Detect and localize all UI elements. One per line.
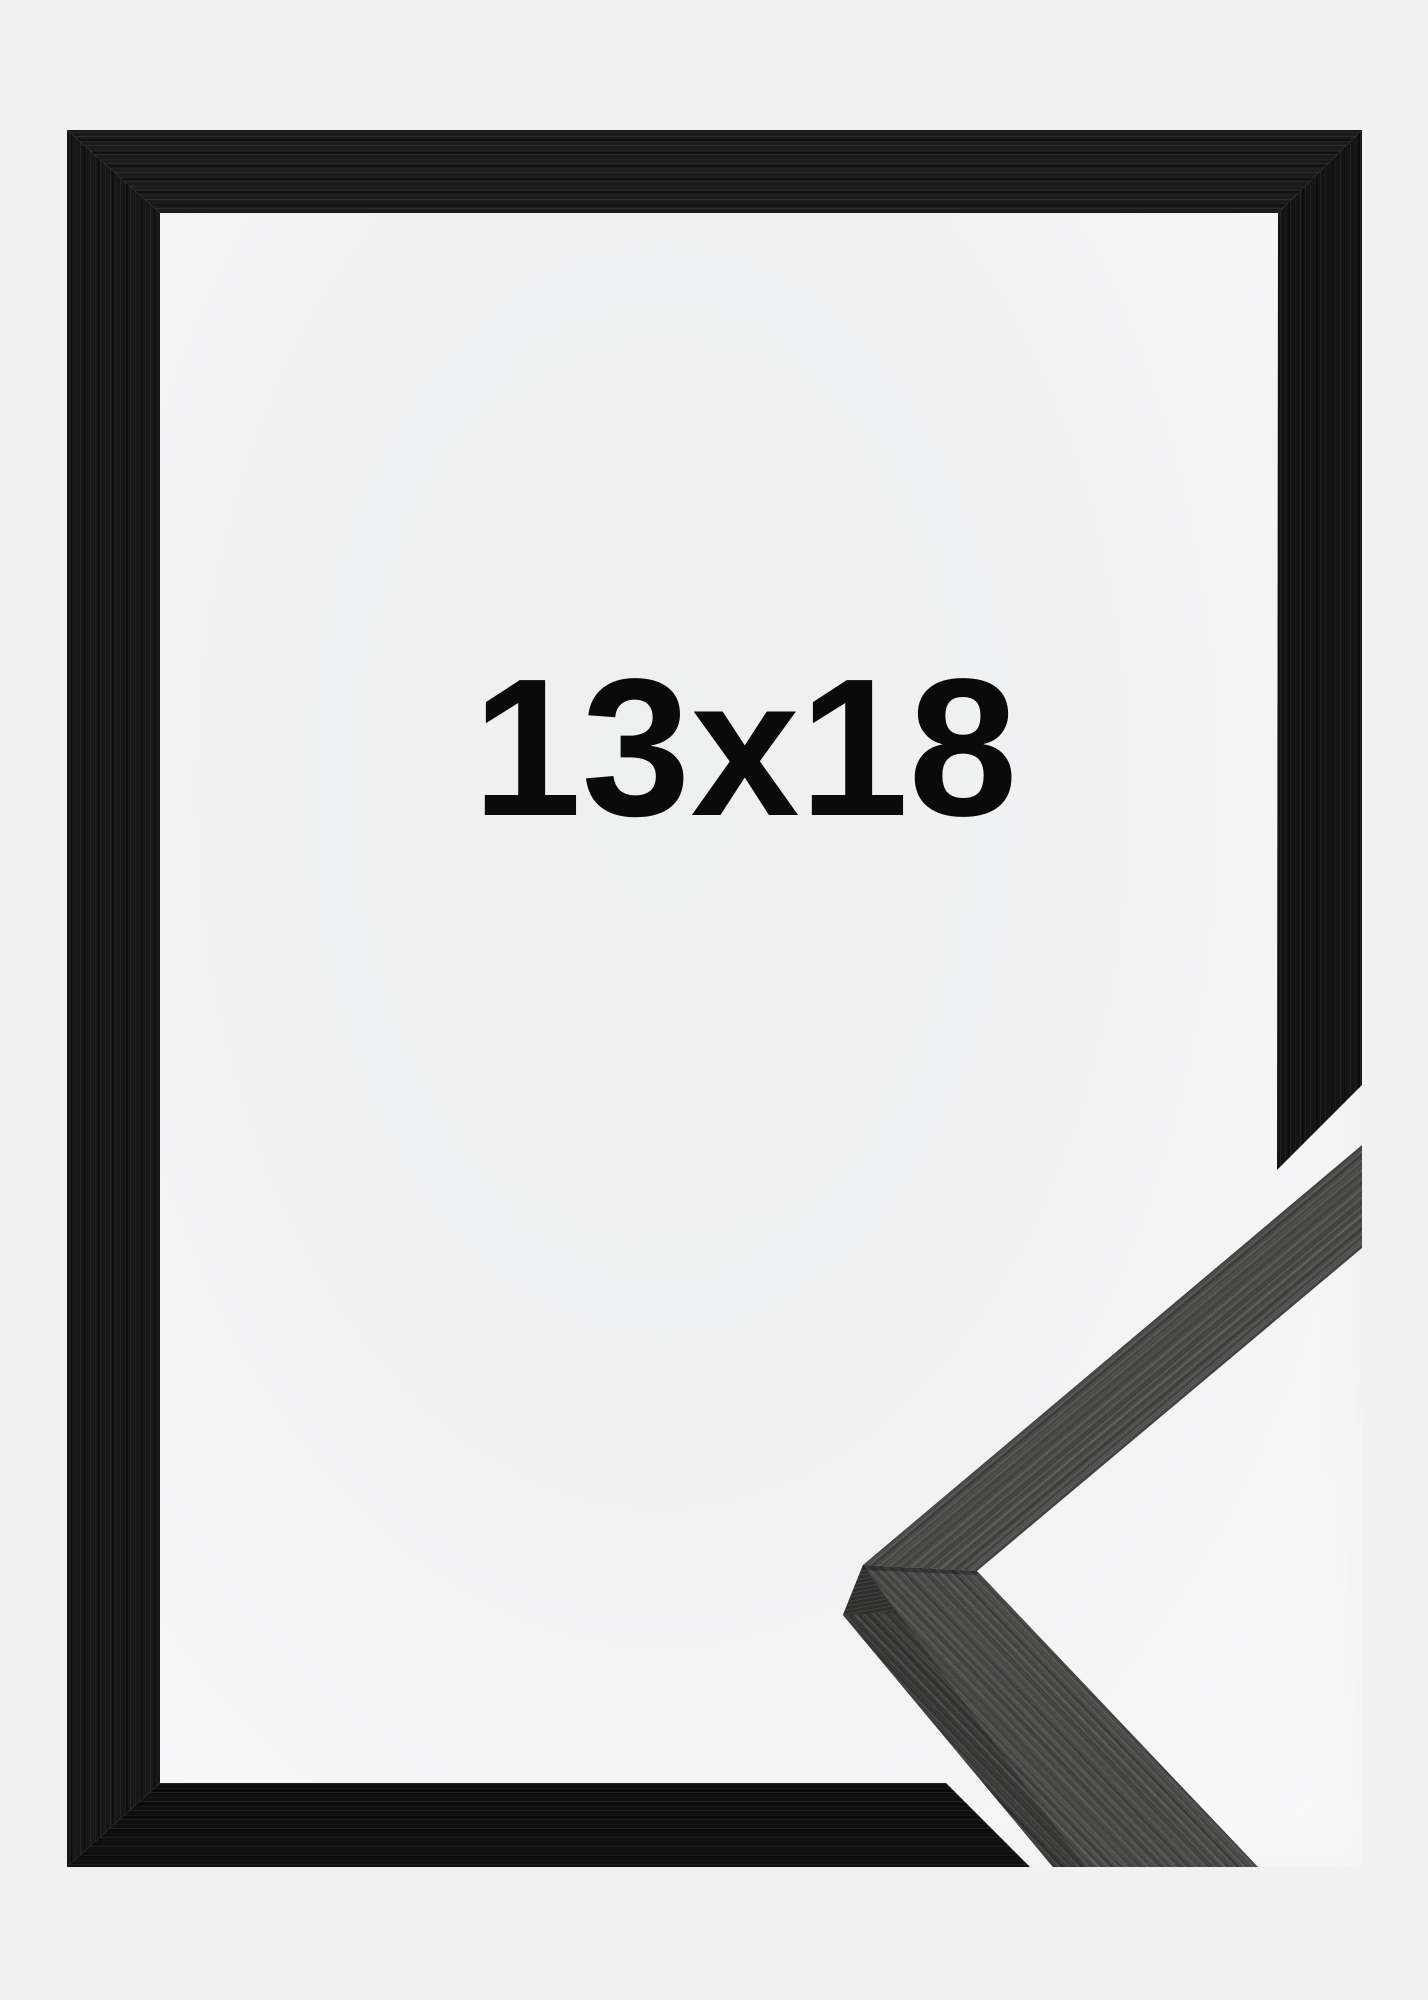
frame-opening-paper xyxy=(67,130,1362,1867)
size-label: 13x18 xyxy=(186,650,1304,846)
product-photo: 13x18 xyxy=(0,0,1428,2000)
